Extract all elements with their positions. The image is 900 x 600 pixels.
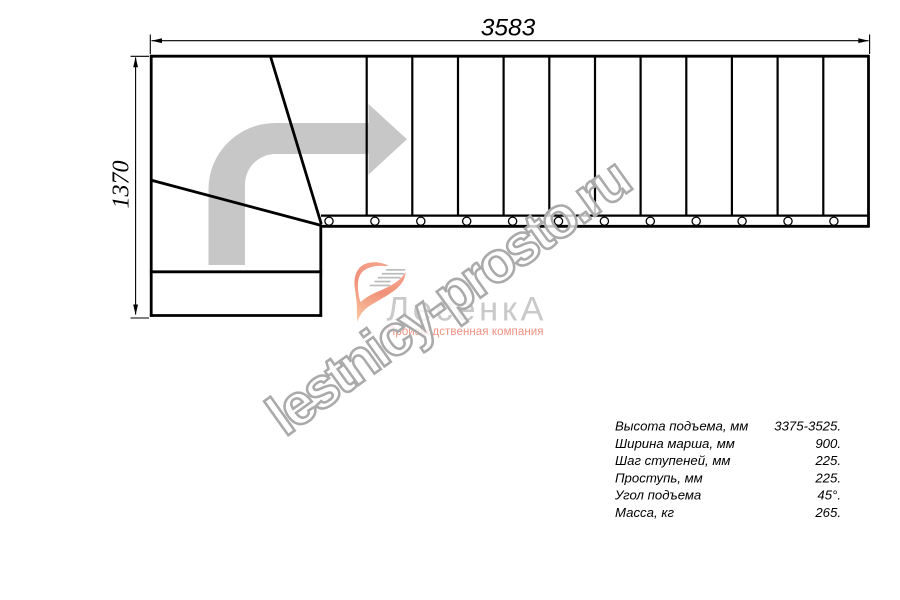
svg-text:3583: 3583 — [481, 15, 536, 42]
svg-text:Ширина марша, мм: Ширина марша, мм — [615, 436, 735, 451]
svg-text:Масса, кг: Масса, кг — [615, 505, 675, 520]
svg-text:1370: 1370 — [109, 161, 135, 209]
svg-text:Проступь, мм: Проступь, мм — [615, 470, 703, 485]
svg-text:Угол подъема: Угол подъема — [614, 488, 701, 503]
svg-text:Высота подъема, мм: Высота подъема, мм — [615, 419, 748, 434]
svg-text:900.: 900. — [815, 436, 841, 451]
svg-text:45°.: 45°. — [817, 488, 841, 503]
svg-text:3375-3525.: 3375-3525. — [774, 419, 841, 434]
svg-text:Шаг ступеней, мм: Шаг ступеней, мм — [615, 453, 730, 468]
svg-text:225.: 225. — [814, 453, 841, 468]
svg-text:225.: 225. — [814, 470, 841, 485]
svg-text:265.: 265. — [814, 505, 841, 520]
